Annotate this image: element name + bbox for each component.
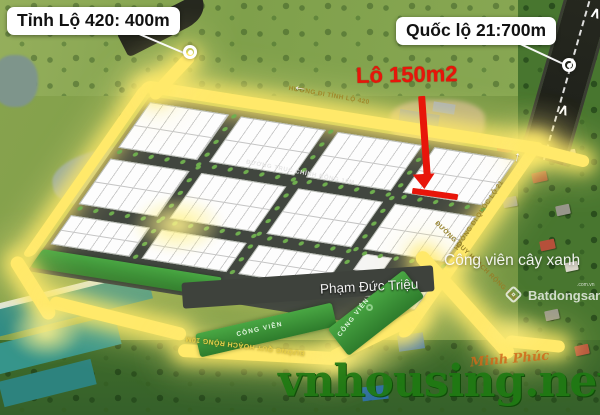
light-flare xyxy=(130,195,225,255)
ring-dot xyxy=(188,50,193,55)
quoc-lo-21-label: Quốc lộ 21:700m xyxy=(396,17,556,45)
aerial-masterplan-image: ∧ ∧ xyxy=(0,0,600,415)
arrow-left-icon: ← xyxy=(292,77,309,96)
batdongsan-text: Batdongsan xyxy=(528,288,600,303)
ring-dot xyxy=(567,63,572,68)
batdongsan-domain: .com.vn xyxy=(577,282,595,288)
pond-top-left xyxy=(0,55,38,107)
site-watermark: vnhousing.net xyxy=(278,356,600,407)
lot-arrow-head xyxy=(413,173,436,189)
road-chevron-icon: ∧ xyxy=(588,2,600,22)
location-ring-marker xyxy=(183,45,197,59)
park-watermark: Công viên cây xanh xyxy=(444,252,580,270)
light-flare xyxy=(480,310,550,355)
lot-annotation-label: Lô 150m2 xyxy=(356,61,458,89)
batdongsan-logo: Batdongsan .com.vn xyxy=(505,284,600,308)
tinh-lo-420-label: Tỉnh Lộ 420: 400m xyxy=(7,7,180,35)
location-ring-marker xyxy=(562,58,576,72)
light-flare xyxy=(8,305,83,360)
